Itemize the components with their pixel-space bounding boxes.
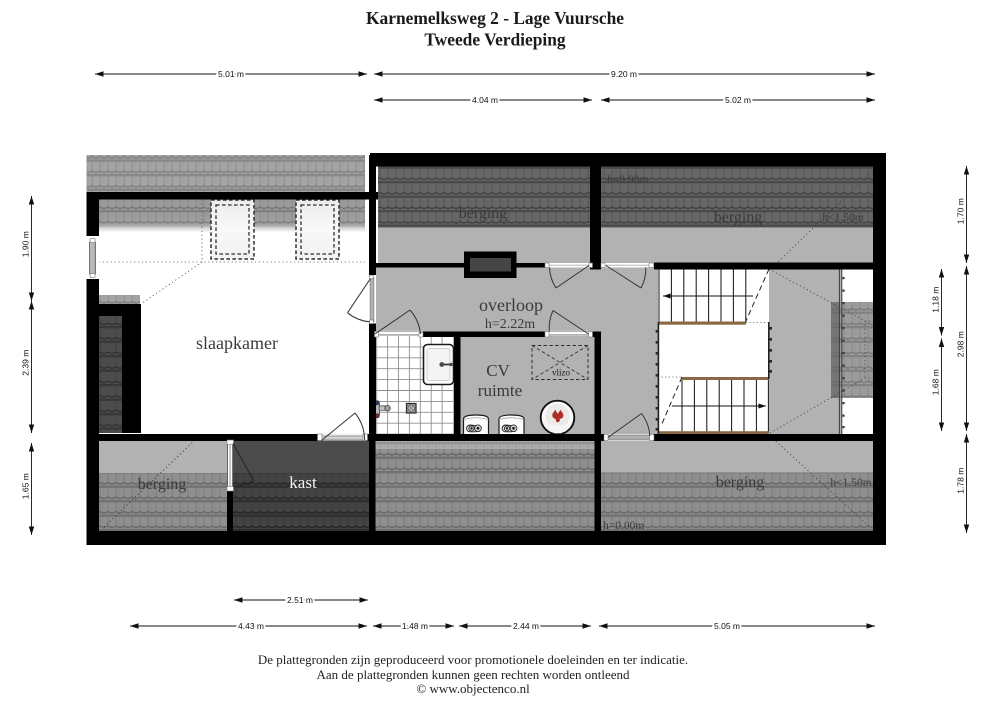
- svg-text:1.90 m: 1.90 m: [21, 231, 31, 257]
- svg-text:1.65 m: 1.65 m: [21, 473, 31, 499]
- svg-text:ruimte: ruimte: [478, 381, 522, 400]
- svg-text:De plattegronden zijn geproduc: De plattegronden zijn geproduceerd voor …: [258, 652, 688, 667]
- svg-text:2.44 m: 2.44 m: [513, 621, 539, 631]
- svg-text:berging: berging: [138, 476, 187, 493]
- svg-text:1.68 m: 1.68 m: [931, 369, 941, 395]
- svg-text:1.78 m: 1.78 m: [956, 468, 966, 494]
- svg-text:1.70 m: 1.70 m: [956, 198, 966, 224]
- svg-text:h=2.22m: h=2.22m: [485, 317, 535, 332]
- svg-text:© www.objectenco.nl: © www.objectenco.nl: [416, 681, 530, 696]
- svg-text:berging: berging: [714, 209, 763, 226]
- svg-text:h<1.50m: h<1.50m: [830, 477, 871, 489]
- svg-text:slaapkamer: slaapkamer: [196, 333, 278, 353]
- svg-text:overloop: overloop: [479, 295, 543, 315]
- svg-text:berging: berging: [459, 205, 508, 222]
- svg-text:Aan de plattegronden kunnen ge: Aan de plattegronden kunnen geen rechten…: [317, 667, 630, 682]
- svg-text:5.01 m: 5.01 m: [218, 69, 244, 79]
- svg-text:2.39 m: 2.39 m: [21, 350, 31, 376]
- svg-text:4.04 m: 4.04 m: [472, 95, 498, 105]
- svg-text:1.48 m: 1.48 m: [402, 621, 428, 631]
- svg-text:berging: berging: [716, 474, 765, 491]
- svg-text:CV: CV: [486, 361, 510, 380]
- svg-text:h=0.00m: h=0.00m: [607, 174, 648, 186]
- svg-text:2.51 m: 2.51 m: [287, 595, 313, 605]
- svg-text:1.18 m: 1.18 m: [931, 287, 941, 313]
- svg-text:vlizo: vlizo: [552, 368, 570, 378]
- svg-text:2.98 m: 2.98 m: [956, 331, 966, 357]
- svg-text:4.43 m: 4.43 m: [238, 621, 264, 631]
- svg-text:5.02 m: 5.02 m: [725, 95, 751, 105]
- svg-text:5.05 m: 5.05 m: [714, 621, 740, 631]
- svg-text:Tweede Verdieping: Tweede Verdieping: [424, 30, 566, 50]
- svg-text:kast: kast: [289, 473, 317, 492]
- svg-text:9.20 m: 9.20 m: [611, 69, 637, 79]
- svg-text:h=0.00m: h=0.00m: [603, 520, 644, 532]
- svg-text:Karnemelksweg 2 - Lage Vuursch: Karnemelksweg 2 - Lage Vuursche: [366, 8, 624, 28]
- svg-text:h<1.50m: h<1.50m: [822, 212, 863, 224]
